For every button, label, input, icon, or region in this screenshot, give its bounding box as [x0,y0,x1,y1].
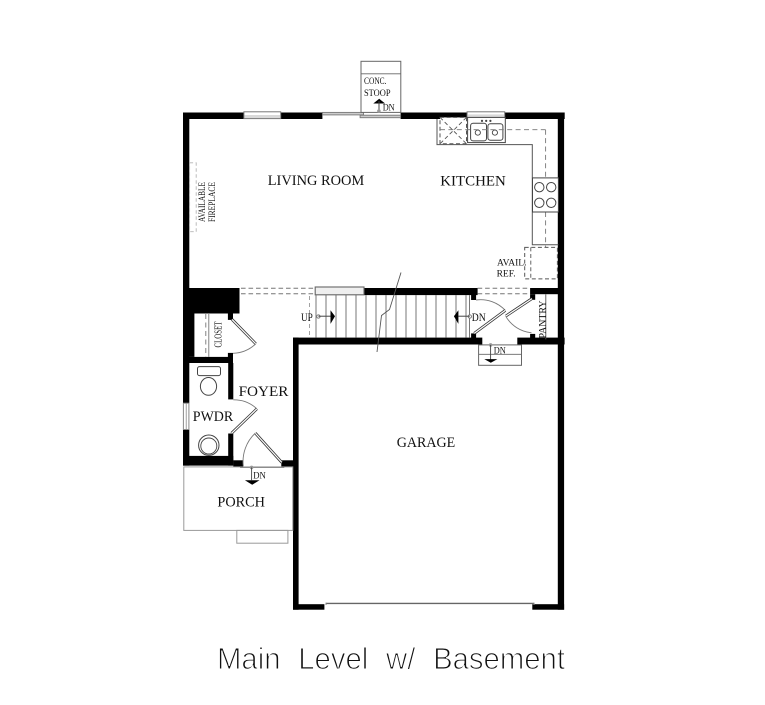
svg-text:Main Level w/ Basement: Main Level w/ Basement [217,642,565,676]
svg-text:DN: DN [383,103,395,113]
svg-text:FOYER: FOYER [239,383,290,400]
svg-text:DN: DN [494,347,506,357]
svg-text:LIVING ROOM: LIVING ROOM [268,172,365,189]
svg-text:UP: UP [301,312,313,324]
svg-text:PWDR: PWDR [193,408,234,425]
svg-text:CLOSET: CLOSET [214,321,225,347]
svg-text:REF.: REF. [497,269,516,279]
svg-text:FIREPLACE: FIREPLACE [207,182,217,222]
svg-text:AVAILABLE: AVAILABLE [197,182,207,222]
svg-text:CONC.: CONC. [364,77,387,87]
svg-text:KITCHEN: KITCHEN [440,173,506,190]
svg-text:AVAIL.: AVAIL. [497,258,526,268]
svg-text:DN: DN [472,312,487,324]
svg-text:PORCH: PORCH [217,494,265,511]
svg-text:DN: DN [253,472,266,482]
svg-text:PANTRY: PANTRY [537,300,549,338]
svg-text:STOOP: STOOP [364,89,391,99]
svg-text:GARAGE: GARAGE [397,434,455,451]
